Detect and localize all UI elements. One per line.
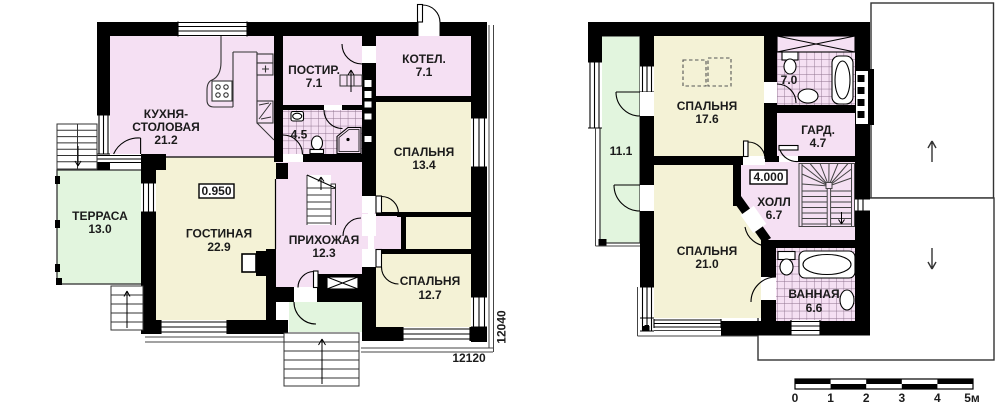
svg-text:21.2: 21.2: [154, 133, 178, 147]
svg-text:1: 1: [827, 391, 834, 404]
svg-text:4: 4: [934, 391, 941, 404]
svg-text:12.3: 12.3: [312, 246, 336, 260]
svg-text:ГОСТИНАЯ: ГОСТИНАЯ: [186, 227, 252, 241]
svg-text:5м: 5м: [964, 391, 980, 404]
svg-text:4.000: 4.000: [753, 170, 783, 184]
svg-text:СПАЛЬНЯ: СПАЛЬНЯ: [400, 274, 460, 288]
svg-text:ТЕРРАСА: ТЕРРАСА: [72, 209, 128, 223]
svg-text:ХОЛЛ: ХОЛЛ: [757, 195, 791, 209]
svg-text:7.1: 7.1: [416, 65, 433, 79]
svg-text:0.950: 0.950: [201, 184, 231, 198]
svg-text:СПАЛЬНЯ: СПАЛЬНЯ: [677, 244, 737, 258]
svg-text:17.6: 17.6: [695, 112, 719, 126]
svg-text:6.6: 6.6: [806, 301, 823, 315]
svg-text:22.9: 22.9: [207, 240, 231, 254]
svg-text:4.7: 4.7: [810, 136, 827, 150]
svg-text:ПРИХОЖАЯ: ПРИХОЖАЯ: [289, 233, 360, 247]
svg-text:13.0: 13.0: [88, 222, 112, 236]
svg-text:ПОСТИР.: ПОСТИР.: [288, 63, 340, 77]
svg-text:КОТЕЛ.: КОТЕЛ.: [402, 52, 446, 66]
svg-text:2: 2: [863, 391, 870, 404]
svg-text:СТОЛОВАЯ: СТОЛОВАЯ: [132, 120, 200, 134]
svg-text:0: 0: [792, 391, 799, 404]
svg-text:6.7: 6.7: [766, 208, 783, 222]
svg-text:12120: 12120: [452, 351, 486, 365]
svg-text:13.4: 13.4: [412, 158, 436, 172]
svg-text:7.0: 7.0: [781, 73, 798, 87]
svg-text:4.5: 4.5: [291, 128, 308, 142]
svg-text:3: 3: [898, 391, 905, 404]
svg-text:ГАРД.: ГАРД.: [801, 123, 835, 137]
svg-text:7.1: 7.1: [306, 76, 323, 90]
svg-text:КУХНЯ-: КУХНЯ-: [144, 107, 188, 121]
svg-text:12040: 12040: [495, 310, 509, 344]
svg-text:12.7: 12.7: [418, 288, 442, 302]
svg-text:СПАЛЬНЯ: СПАЛЬНЯ: [394, 145, 454, 159]
svg-text:21.0: 21.0: [695, 257, 719, 271]
svg-text:11.1: 11.1: [610, 144, 633, 158]
svg-text:ВАННАЯ: ВАННАЯ: [788, 287, 839, 301]
svg-text:СПАЛЬНЯ: СПАЛЬНЯ: [677, 99, 737, 113]
